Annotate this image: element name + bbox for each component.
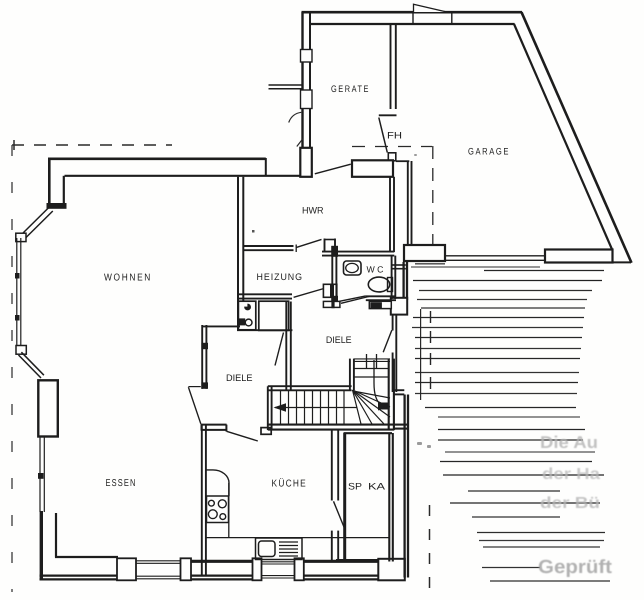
- svg-text:ESSEN: ESSEN: [106, 478, 137, 489]
- svg-text:KÜCHE: KÜCHE: [272, 478, 308, 490]
- svg-text:der Bü: der Bü: [540, 495, 600, 512]
- svg-text:DIELE: DIELE: [226, 373, 253, 384]
- svg-text:GARAGE: GARAGE: [468, 147, 510, 158]
- svg-text:DIELE: DIELE: [326, 335, 352, 346]
- svg-text:HWR: HWR: [302, 206, 324, 217]
- svg-text:W C: W C: [367, 265, 384, 275]
- svg-text:Geprüft: Geprüft: [538, 557, 613, 578]
- svg-text:GERATE: GERATE: [331, 84, 370, 95]
- svg-text:WOHNEN: WOHNEN: [104, 273, 152, 284]
- svg-text:KA: KA: [368, 482, 386, 493]
- svg-text:HEIZUNG: HEIZUNG: [257, 272, 304, 283]
- svg-text:Die Au: Die Au: [540, 433, 598, 452]
- svg-text:der Ha: der Ha: [542, 466, 600, 483]
- svg-text:SP: SP: [348, 482, 362, 493]
- svg-text:FH: FH: [387, 131, 402, 142]
